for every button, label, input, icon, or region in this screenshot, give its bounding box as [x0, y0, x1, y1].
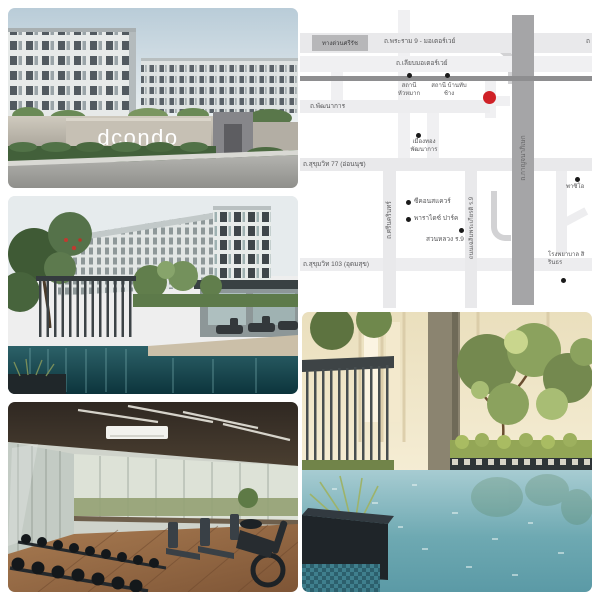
road-label: ถ.พระราม 9 - มอเตอร์เวย์: [384, 38, 455, 46]
road-label: ถนนเฉลิมพระเกียรติ ร.9: [466, 197, 476, 259]
road-label: ถ.กาญจนาภิเษก: [518, 135, 528, 181]
station-label: สถานี บ้านทับช้าง: [431, 83, 467, 98]
photo-pool-daytime: [8, 196, 298, 394]
mosaic-tiles: [302, 564, 380, 592]
road-ramp: [491, 191, 511, 241]
place-dot-icon: [416, 133, 421, 138]
photo-condo-exterior: dcondo: [8, 8, 298, 188]
pool-deck: [148, 335, 298, 358]
photo-pool-garden: [302, 312, 592, 592]
road-label: ถ.เลียบมอเตอร์เวย์: [396, 60, 448, 68]
pool-daytime-illustration: [8, 196, 298, 394]
place-dot-icon: [575, 177, 580, 182]
road-srinakarin: [383, 171, 396, 308]
property-collage: dcondo: [0, 0, 600, 600]
road-label: ถ.พัฒนาการ: [310, 103, 345, 111]
expressway-label-box: ทางด่วนศรีรัช: [312, 35, 368, 51]
place-label: สวนหลวง ร.9: [426, 236, 464, 244]
planter: [8, 374, 66, 394]
pergola: [302, 356, 394, 462]
road-label: ถ.สุขุมวิท 77 (อ่อนนุช): [303, 161, 366, 169]
place-dot-icon: [561, 278, 566, 283]
checker-tile-edge: [450, 458, 592, 470]
condo-exterior-illustration: dcondo: [8, 8, 298, 188]
place-label: ซีคอนสแควร์: [414, 198, 451, 206]
road-label: ถ.สุขุมวิท 103 (อุดมสุข): [303, 261, 369, 269]
place-label: พาซิโอ: [566, 184, 584, 192]
location-marker-icon: [483, 91, 496, 104]
location-map: ทางด่วนศรีรัช ถ.พระราม 9 - มอเตอร์เวย์ ถ…: [300, 8, 592, 308]
fitness-room-illustration: [8, 402, 298, 592]
station-dot-icon: [407, 73, 412, 78]
place-label: เมืองทอง พัฒนาการ: [404, 139, 444, 154]
road-label-cut: ถ: [586, 38, 590, 46]
place-label: โรงพยาบาล สิรินธร: [548, 252, 586, 267]
place-dot-icon: [459, 228, 464, 233]
place-label: พาราไดซ์ ปาร์ค: [414, 215, 458, 223]
station-label: สถานี หัวหมาก: [394, 83, 424, 98]
photo-fitness-room: [8, 402, 298, 592]
pool-garden-illustration: [302, 312, 592, 592]
place-dot-icon: [406, 200, 411, 205]
air-conditioner: [106, 426, 168, 439]
station-dot-icon: [445, 73, 450, 78]
place-dot-icon: [406, 217, 411, 222]
outside-greenery: [74, 498, 298, 516]
road-label: ถ.ศรีนครินทร์: [384, 201, 394, 239]
potted-plant: [238, 488, 258, 508]
